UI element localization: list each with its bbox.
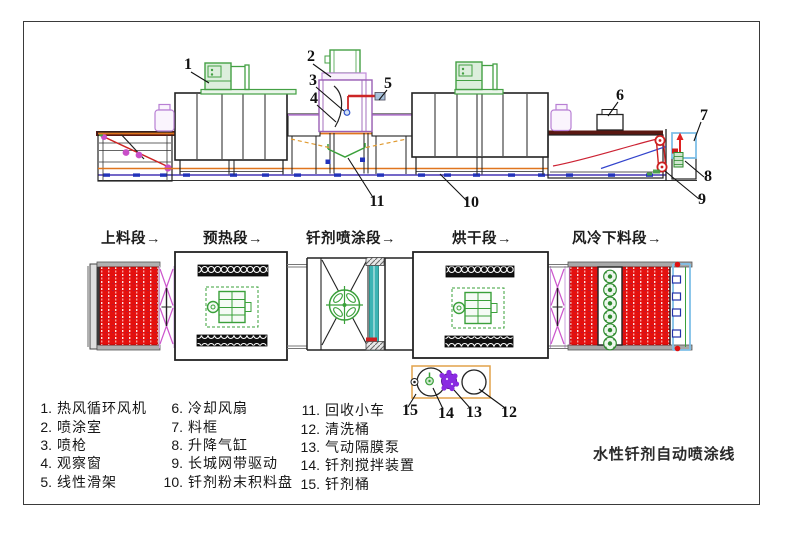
flux-station-plan [411, 366, 490, 398]
callout-number-5: 5 [384, 75, 392, 92]
section-label-drying: 烘干段→ [452, 227, 512, 248]
callout-number-14: 14 [438, 405, 454, 422]
spray-fan-plan [326, 286, 363, 324]
legend-item: 11.回收小车 [292, 401, 415, 419]
section-label-spray: 钎剂喷涂段→ [306, 227, 396, 248]
callout-number-8: 8 [704, 168, 712, 185]
callout-number-2: 2 [307, 48, 315, 65]
legend-item: 15.钎剂桶 [292, 475, 415, 493]
section-label-cooling: 风冷下料段→ [572, 227, 662, 248]
callout-number-7: 7 [700, 107, 708, 124]
incline-belt-line [100, 135, 173, 169]
cleaning-bucket [462, 370, 486, 394]
callout-number-6: 6 [616, 87, 624, 104]
heater-coil-bar [446, 266, 514, 277]
cooling-fan-plan [604, 270, 617, 283]
base-feet [103, 173, 653, 176]
callout-number-3: 3 [309, 72, 317, 89]
legend-item: 6.冷却风扇 [150, 399, 293, 417]
drying-section-plan [413, 252, 548, 358]
cross-joint-plan [160, 266, 175, 348]
legend-column-1: 1.热风循环风机 2.喷涂室 3.喷枪 4.观察窗 5.线性滑架 [34, 399, 147, 491]
legend-item: 1.热风循环风机 [34, 399, 147, 417]
drawing-title: 水性钎剂自动喷涂线 [593, 443, 735, 464]
drying-fan-motor [455, 62, 503, 94]
legend-item: 5.线性滑架 [34, 473, 147, 491]
jar-left [155, 105, 174, 132]
spray-booth-body [319, 80, 372, 132]
preheat-chamber-elevation [155, 63, 296, 175]
legend-item: 10.钎剂粉末积料盘 [150, 473, 293, 491]
legend-column-2: 6.冷却风扇 7.料框 8.升降气缸 9.长城网带驱动 10.钎剂粉末积料盘 [150, 399, 293, 491]
legend-item: 13.气动隔膜泵 [292, 438, 415, 456]
exhaust-box [325, 50, 360, 73]
callout-number-13: 13 [466, 404, 482, 421]
hot-air-fan-motor [201, 63, 296, 94]
unload-frame-plan [673, 262, 691, 352]
material-frame-elevation [672, 133, 696, 180]
legend-item: 4.观察窗 [34, 454, 147, 472]
cooling-fan-box [597, 115, 623, 131]
drying-chamber-elevation [412, 62, 571, 175]
callout-number-1: 1 [184, 56, 192, 73]
callout-number-12: 12 [501, 404, 517, 421]
section-label-preheat: 预热段→ [203, 227, 263, 248]
legend-item: 7.料框 [150, 417, 293, 435]
callout-number-4: 4 [310, 90, 318, 107]
legend-item: 8.升降气缸 [150, 436, 293, 454]
heater-coil-bar [198, 265, 268, 276]
drawing-canvas: 1 2 3 4 5 6 7 8 9 10 11 12 13 14 15 上料段→… [0, 0, 791, 536]
plan-view [88, 252, 692, 398]
section-label-loading: 上料段→ [101, 227, 161, 248]
legend-item: 9.长城网带驱动 [150, 454, 293, 472]
legend-item: 3.喷枪 [34, 436, 147, 454]
legend-item: 2.喷涂室 [34, 417, 147, 435]
heater-coil-bar [197, 335, 267, 346]
legend-column-3: 11.回收小车 12.清洗桶 13.气动隔膜泵 14.钎剂搅拌装置 15.钎剂桶 [292, 401, 415, 493]
callout-number-11: 11 [369, 193, 384, 210]
spray-chamber-elevation [288, 50, 412, 174]
legend-item: 14.钎剂搅拌装置 [292, 456, 415, 474]
callout-number-9: 9 [698, 191, 706, 208]
jar-right [551, 105, 571, 131]
heater-coil-bar [445, 336, 513, 347]
lifting-cylinder [674, 153, 683, 168]
mesh-belt-drive [655, 136, 666, 172]
legend-item: 12.清洗桶 [292, 419, 415, 437]
preheat-section-plan [175, 252, 287, 360]
spray-gun-tip [344, 110, 350, 116]
callout-number-10: 10 [463, 194, 479, 211]
loading-belt-plan [97, 262, 160, 350]
spray-section-plan [307, 258, 413, 351]
